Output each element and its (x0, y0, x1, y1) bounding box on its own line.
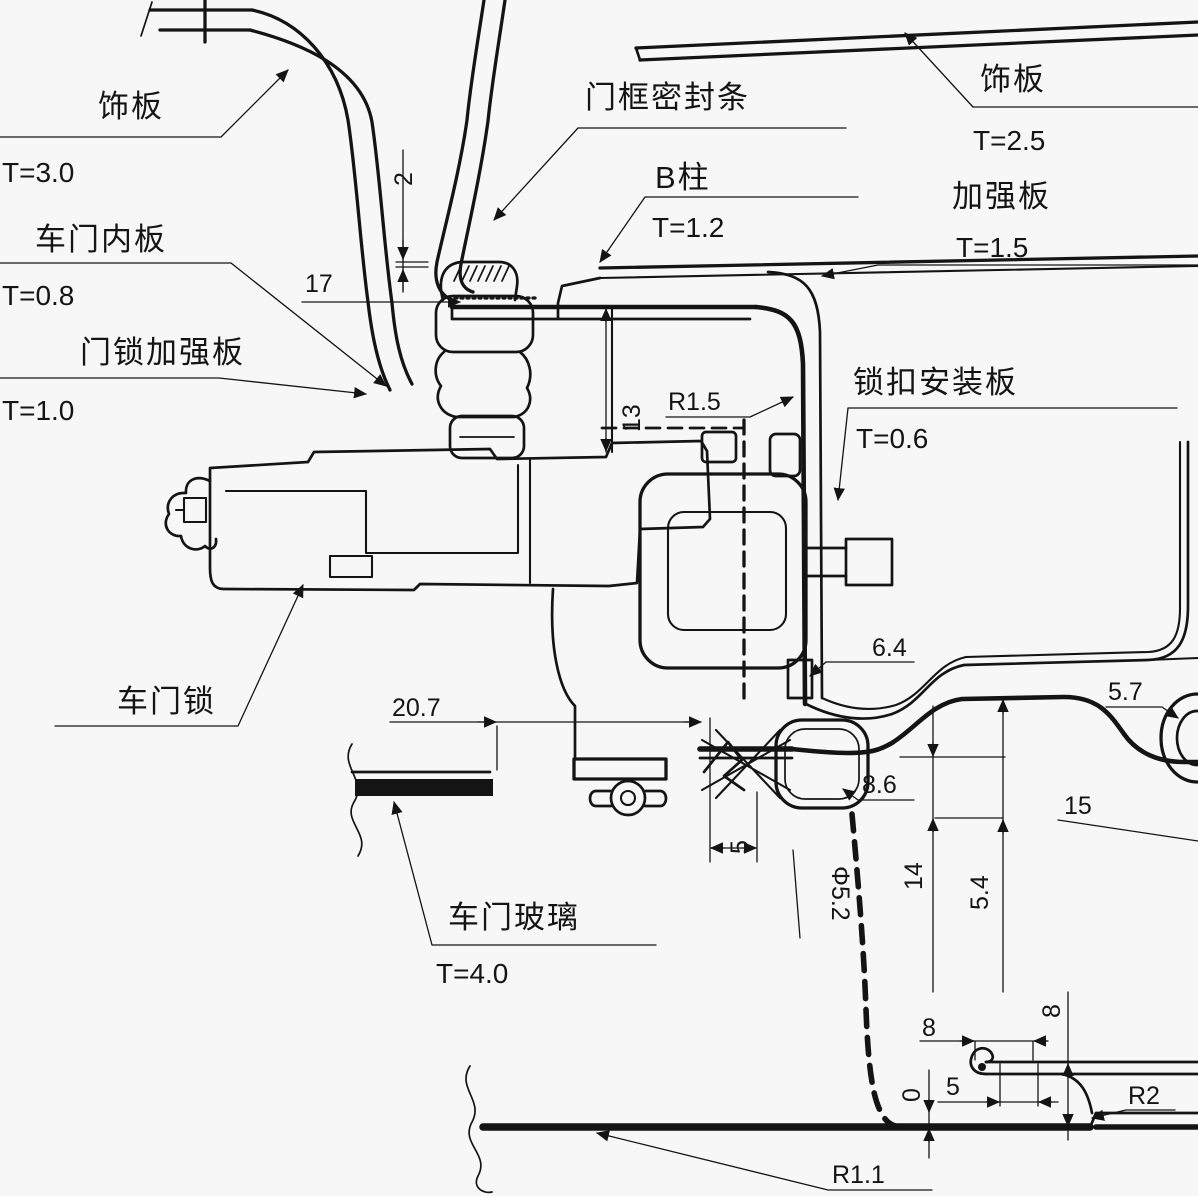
dim-phi52-leader (793, 850, 800, 938)
roof-rail-top-right (636, 22, 1198, 60)
callout-texts: 饰板 T=3.0 饰板 T=2.5 门框密封条 B柱 T=1.2 加强板 T=1… (2, 62, 1051, 989)
dim-64: 6.4 (872, 634, 907, 662)
trim-curves (436, 0, 505, 300)
panel-step (558, 278, 600, 318)
outer-panel-lower (852, 814, 900, 1127)
seal-lobe-upper (436, 296, 533, 352)
lock-outline (210, 441, 710, 590)
housing-tab (770, 434, 800, 476)
dim-13: 13 (618, 404, 646, 432)
seal-loop-outer (776, 720, 868, 808)
label-door-lock: 车门锁 (117, 684, 216, 719)
leader-trim-right (905, 33, 1198, 107)
window-frame-top-left (141, 0, 412, 390)
trim-curve-inner (460, 0, 505, 292)
connector-socket (184, 498, 206, 522)
dim-15: 15 (1064, 792, 1092, 820)
label-door-inner-panel: 车门内板 (35, 222, 167, 257)
outer-panel-s-curve (822, 442, 1180, 709)
dimension-texts: 2 17 13 R1.5 20.7 6.4 5.7 15 8.6 14 5.4 … (305, 172, 1160, 1189)
dim-r11: R1.1 (832, 1161, 885, 1189)
dim-64-leader (810, 662, 914, 676)
leader-b-pillar (600, 197, 858, 262)
housing-inner (668, 512, 786, 630)
door-lock-body (166, 441, 710, 815)
seal-lobe-lower (436, 352, 531, 417)
leader-lock-reinforcement (0, 378, 366, 394)
lock-inner-step (226, 465, 518, 553)
dim-5-bottom: 5 (946, 1073, 960, 1101)
value-striker-mount: T=0.6 (856, 423, 928, 454)
trim-curve-outer (436, 0, 484, 300)
reinforcement-profile (768, 272, 822, 698)
dim-14-ext (900, 706, 1005, 992)
label-door-glass: 车门玻璃 (448, 900, 580, 935)
label-reinforcement: 加强板 (952, 179, 1051, 214)
mount-bolt (846, 539, 892, 585)
r2-corner (1062, 1074, 1092, 1113)
dim-15-leader (1058, 820, 1198, 841)
door-section-drawing: 饰板 T=3.0 饰板 T=2.5 门框密封条 B柱 T=1.2 加强板 T=1… (0, 0, 1198, 1196)
flange-rivet (978, 1063, 986, 1071)
value-lock-reinforcement: T=1.0 (2, 395, 74, 426)
label-striker-mount: 锁扣安装板 (853, 365, 1018, 400)
roller-outline (611, 781, 645, 815)
sill-right (792, 442, 1198, 1127)
dim-5-striker: 5 (726, 840, 754, 854)
break-wave (348, 744, 362, 856)
outline (636, 22, 1198, 48)
dim-r2: R2 (1128, 1082, 1160, 1110)
value-reinforcement: T=1.5 (956, 232, 1028, 263)
striker-detail (700, 720, 868, 808)
seal-loop-inner (785, 729, 859, 799)
label-b-pillar: B柱 (655, 160, 711, 195)
bolt-shank (806, 548, 846, 576)
dim-r15: R1.5 (668, 388, 721, 416)
roller-wing-left (590, 791, 611, 806)
value-door-inner-panel: T=0.8 (2, 280, 74, 311)
dim-8h-line (920, 1041, 1048, 1060)
clip-hatch (454, 266, 509, 281)
dim-17: 17 (305, 270, 333, 298)
outline (636, 48, 640, 60)
value-trim-right: T=2.5 (973, 125, 1045, 156)
value-door-glass: T=4.0 (436, 958, 508, 989)
dim-gap2-line (396, 150, 428, 290)
pillar-outer-panel (600, 256, 1198, 268)
lock-lower-leg (552, 589, 575, 758)
latch-housing (640, 432, 892, 698)
clip-outline (441, 262, 517, 300)
dim-phi52: Φ5.2 (826, 866, 854, 921)
dim-8-horizontal: 8 (922, 1014, 936, 1042)
label-trim-right: 饰板 (980, 62, 1046, 97)
value-trim-left: T=3.0 (2, 157, 74, 188)
break-tick (141, 2, 152, 36)
dim-0: 0 (898, 1088, 926, 1102)
label-door-frame-seal: 门框密封条 (585, 80, 750, 115)
dim-gap2: 2 (390, 172, 418, 186)
dim-207-line (390, 722, 700, 770)
label-lock-reinforcement: 门锁加强板 (80, 335, 245, 370)
callout-leaders (0, 33, 1198, 945)
roller-wing-right (645, 791, 666, 806)
door-glass-section (348, 744, 493, 856)
seal-bulb-outer (1161, 694, 1198, 782)
housing-outer (640, 474, 806, 668)
dim-8-vertical: 8 (1038, 1004, 1066, 1018)
glass-run-seal (436, 262, 756, 458)
seal-bulb-inner (1177, 711, 1198, 765)
dim-14: 14 (900, 862, 928, 890)
label-trim-left: 饰板 (98, 89, 164, 124)
dim-54: 5.4 (966, 875, 994, 910)
roller-pin (621, 791, 635, 805)
channel-foot (574, 759, 666, 779)
leader-striker-mount-plate (838, 408, 1177, 500)
glass-bar (355, 779, 493, 796)
lock-detail-rect (330, 556, 372, 577)
dim-207: 20.7 (392, 694, 441, 722)
value-b-pillar: T=1.2 (652, 212, 724, 243)
connector-blob (166, 478, 216, 549)
frame-curve-outer (252, 10, 390, 390)
dim-86: 8.6 (862, 771, 897, 799)
dim-57: 5.7 (1108, 678, 1143, 706)
pillar-face (756, 307, 805, 704)
section-drawing-canvas: 饰板 T=3.0 饰板 T=2.5 门框密封条 B柱 T=1.2 加强板 T=1… (0, 0, 1198, 1196)
